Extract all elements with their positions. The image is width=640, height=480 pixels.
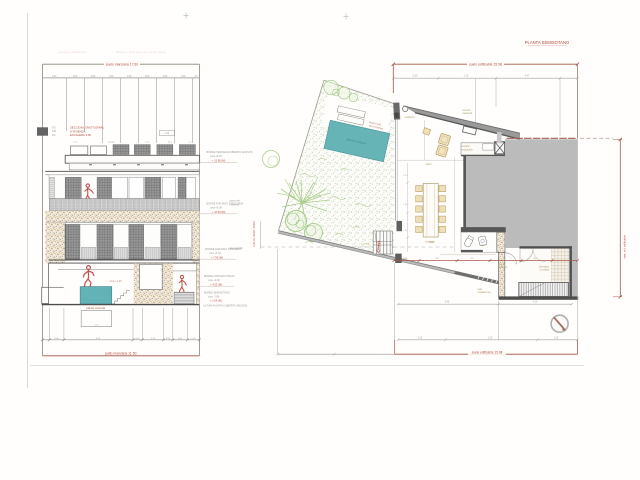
- svg-text:4.47: 4.47: [525, 75, 530, 78]
- svg-text:instalaciones: instalaciones: [478, 291, 492, 294]
- svg-text:BORDE FORJADO P.BAJA: BORDE FORJADO P.BAJA: [204, 275, 235, 278]
- svg-text:sala: sala: [478, 289, 483, 291]
- svg-text:BORDE TERRAZA/CUBIERTA VECINOS: BORDE TERRAZA/CUBIERTA VECINOS: [207, 151, 253, 154]
- svg-text:patio manzana 11.50: patio manzana 11.50: [105, 351, 137, 355]
- svg-text:acera vial: acera vial: [230, 200, 241, 203]
- svg-text:armario: armario: [462, 145, 471, 148]
- svg-text:P.1.: P.1.: [52, 133, 57, 137]
- svg-text:existente: existente: [230, 204, 240, 207]
- svg-text:1.50: 1.50: [163, 76, 168, 78]
- svg-text:vestibulo: vestibulo: [405, 116, 415, 119]
- svg-text:+ 13.80 (M): + 13.80 (M): [212, 159, 225, 163]
- svg-text:ULTIMA PLANTA CUBIERTA VECINOS: ULTIMA PLANTA CUBIERTA VECINOS: [204, 305, 248, 308]
- svg-text:cota +1.35: cota +1.35: [110, 279, 123, 283]
- svg-text:alineacion oficial segun plan: alineacion oficial segun plan parcial vi…: [116, 50, 166, 54]
- svg-text:cota +3.04: cota +3.04: [209, 252, 221, 255]
- svg-text:+0.4: +0.4: [94, 325, 99, 327]
- svg-text:1.50: 1.50: [91, 76, 96, 78]
- svg-text:1.50: 1.50: [52, 76, 57, 78]
- svg-text:suelo edificable 15.98: suelo edificable 15.98: [469, 63, 502, 67]
- svg-text:max. vol. edificable: max. vol. edificable: [623, 235, 627, 259]
- svg-text:alineacion existente vial: alineacion existente vial: [58, 50, 86, 54]
- svg-text:P.B.: P.B.: [52, 129, 57, 133]
- svg-text:cota -2.88: cota -2.88: [208, 295, 220, 298]
- svg-text:cota +0.00: cota +0.00: [208, 279, 220, 282]
- svg-text:1.10: 1.10: [464, 75, 469, 78]
- svg-text:lavadero: lavadero: [499, 266, 509, 269]
- svg-text:suelo manzana 17.60: suelo manzana 17.60: [106, 62, 139, 66]
- svg-text:suelo edificable 15.98: suelo edificable 15.98: [472, 351, 503, 355]
- svg-text:1.50: 1.50: [109, 76, 114, 78]
- svg-text:CALLE SANT JOAN: CALLE SANT JOAN: [252, 221, 256, 246]
- svg-text:cota +6.08: cota +6.08: [210, 207, 222, 210]
- svg-text:y vestidor: y vestidor: [540, 269, 550, 272]
- svg-text:cota +9.15: cota +9.15: [210, 155, 222, 158]
- svg-text:+ 10.60 (M): + 10.60 (M): [212, 210, 225, 214]
- svg-text:aseo: aseo: [481, 244, 487, 247]
- svg-text:1.50: 1.50: [127, 76, 132, 78]
- svg-text:peatonal: peatonal: [463, 112, 473, 115]
- svg-text:P.S.: P.S.: [52, 125, 57, 129]
- svg-text:salon: salon: [426, 163, 433, 166]
- svg-text:planta vivienda: planta vivienda: [86, 306, 105, 310]
- svg-text:1.10: 1.10: [164, 132, 169, 135]
- svg-text:1.50: 1.50: [145, 76, 150, 78]
- svg-text:patio: patio: [429, 241, 435, 244]
- svg-text:6.15: 6.15: [418, 337, 423, 339]
- svg-text:1.50: 1.50: [181, 76, 186, 78]
- svg-text:empotrado: empotrado: [462, 148, 474, 151]
- svg-text:1.35: 1.35: [554, 337, 559, 339]
- svg-text:PLANTA SEMISOTANO: PLANTA SEMISOTANO: [525, 40, 570, 45]
- svg-text:1.50: 1.50: [73, 76, 78, 78]
- svg-text:5.30: 5.30: [413, 75, 418, 78]
- svg-text:4.10: 4.10: [533, 302, 538, 304]
- svg-text:+ 4.52 (M): + 4.52 (M): [210, 282, 222, 286]
- svg-text:9.98: 9.98: [445, 302, 450, 304]
- svg-text:linea bordillo: linea bordillo: [230, 247, 244, 250]
- svg-text:ESCALERA 1:50: ESCALERA 1:50: [70, 133, 91, 137]
- svg-text:+ 7.56 (M): + 7.56 (M): [211, 255, 223, 259]
- svg-text:cuarto: cuarto: [499, 263, 506, 266]
- svg-text:dormitorio: dormitorio: [539, 266, 550, 269]
- svg-text:+ 1.64 (M): + 1.64 (M): [210, 298, 222, 302]
- svg-text:BORDE SEMISOTANO: BORDE SEMISOTANO: [204, 291, 230, 294]
- svg-text:x.xx xx: x.xx xx: [108, 142, 116, 144]
- svg-text:1.50: 1.50: [488, 337, 493, 339]
